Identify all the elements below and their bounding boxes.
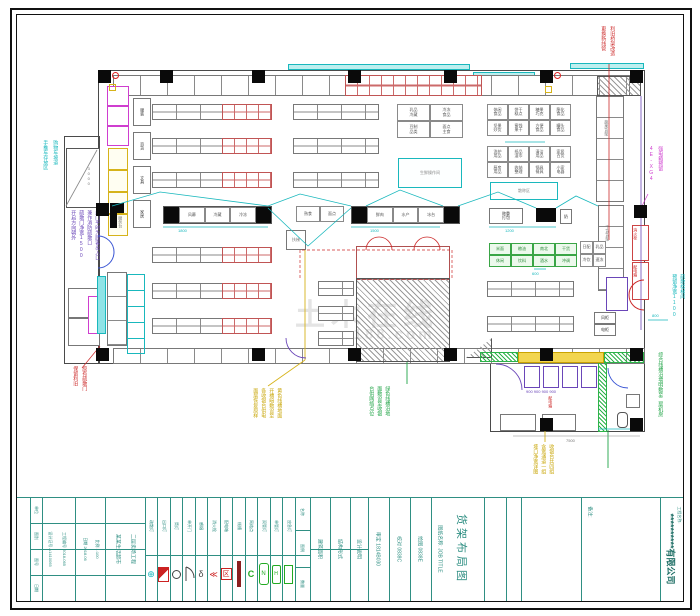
titleblock-hline: [30, 523, 145, 524]
label-box-1: 服装: [133, 98, 151, 126]
table-cell: 冷藏: [205, 207, 231, 223]
dim-600: 600: [532, 271, 539, 276]
drawing-title: 货架布局图: [454, 514, 470, 584]
note-line: 兼作消防疏散口: [86, 210, 91, 245]
titleblock-hline: [30, 575, 145, 576]
table-cell: 冲调: [555, 255, 577, 267]
drawing-sheet: 土木在线 co188.com 扶梯 蔬果货架 干货货架 消火栓 配电箱 风柜 电…: [0, 0, 700, 616]
drawing-shape: ⊕: [147, 569, 155, 580]
titleblock-vline: [195, 497, 196, 601]
tb-header-sym: 图例: [299, 544, 305, 552]
magenta-fixture-3: [107, 126, 129, 146]
gondola-row: [293, 172, 379, 188]
legend-symbol-greenc: C: [245, 560, 257, 588]
titleblock-hline: [295, 567, 310, 568]
table-cell: 乳品: [593, 241, 606, 254]
column: [96, 203, 109, 216]
top-wall-shelving-red: [345, 75, 482, 96]
column: [630, 418, 643, 431]
core-landing: [356, 246, 450, 280]
legend-name: 出口灯: [161, 520, 167, 532]
island-5-black: [536, 208, 556, 222]
table-cell: 粮油: [511, 243, 533, 255]
drawing-shape: C: [248, 569, 255, 579]
island-3-cells: 鲜肉水产冰台: [367, 207, 444, 223]
annex-box-3: [626, 394, 640, 408]
titleblock-hline: [30, 549, 145, 550]
titleblock-vline: [145, 497, 146, 601]
note-line: 利旧桥架改造: [609, 26, 614, 56]
legend-symbol-chev: ≪: [208, 560, 220, 588]
gondola-row: [152, 104, 224, 120]
dim-1800: 1800: [178, 228, 187, 233]
yellow-fixture-2: [108, 170, 128, 192]
checkout-1: [524, 366, 540, 388]
island-5-small: 奶: [560, 209, 572, 224]
gondola-row: [152, 172, 224, 188]
table-cell: 收纳 整理: [508, 162, 529, 178]
checkout-4: [581, 366, 597, 388]
table-cell: 冷饮: [580, 254, 593, 267]
tb-check: 校对 0838C: [396, 536, 403, 562]
legend-symbol-gbox2: H: [270, 560, 282, 588]
table-cell: 冰台: [418, 207, 444, 223]
red-wall-box-2: 配电箱: [632, 262, 649, 300]
note-line: 台供网络点位: [368, 386, 373, 416]
table-cell: 干货: [555, 243, 577, 255]
tb-info-label: 单位: [33, 506, 39, 514]
table-cell: 糖果 巧克: [529, 104, 550, 120]
column: [348, 70, 361, 83]
table-cell: 速冻: [593, 254, 606, 267]
right-shelf-a: [596, 96, 624, 202]
table-cell: 鲜肉: [367, 207, 393, 223]
company-name: **********有限公司: [665, 513, 678, 584]
note-line: 更换新线管: [600, 26, 605, 51]
island-1-end-b: [256, 207, 271, 223]
exit-frame-box: [606, 277, 628, 311]
left-lower-fixture: [107, 272, 127, 346]
label-box-4-text: 家居: [140, 210, 144, 218]
tb-header-name: 名称: [299, 508, 305, 516]
legend-symbol-gopen: [283, 560, 295, 588]
legend-name: 消火栓: [211, 520, 217, 532]
checkout-3: [562, 366, 578, 388]
table-cell: 酒水: [533, 255, 555, 267]
drawing-shape: [172, 570, 181, 579]
column: [540, 418, 553, 431]
table-cell: 熟食: [296, 206, 320, 222]
dim-1200: 1200: [505, 228, 514, 233]
gondola-row-red: [222, 283, 272, 299]
annex-box-1: [500, 414, 536, 431]
tb-info-label: 图号: [33, 558, 39, 566]
titleblock-vline: [182, 497, 183, 601]
column: [630, 70, 643, 83]
gondola-row: [293, 104, 379, 120]
titleblock-vline: [282, 497, 283, 601]
table-cell: 冷冻: [230, 207, 256, 223]
table-cell: 日配: [580, 241, 593, 254]
tb-project-label: 工程名称:: [676, 506, 682, 523]
column: [252, 348, 265, 361]
note-line: 手推车存放区: [42, 140, 47, 170]
table-cell: 风幕: [179, 207, 205, 223]
titleblock-vline: [170, 497, 171, 601]
table-cell: 蜜饯 果干: [508, 120, 529, 136]
green-table: 米面粮油南北干货休闲饮料酒水冲调: [489, 243, 577, 267]
table-cell: 休闲 食品: [487, 104, 508, 120]
note-line: 黄色线槽地面: [276, 388, 281, 418]
drawing-shape: 区: [221, 568, 232, 580]
gondola-row-red: [222, 247, 272, 263]
annex-cylinder: [617, 412, 628, 428]
drawing-shape: δ: [198, 569, 203, 579]
col-tag-2: [545, 86, 552, 93]
legend-name: 网络点: [248, 520, 254, 532]
legend-symbol-bar: [233, 560, 245, 588]
titleblock-vline: [389, 497, 390, 601]
note-line: 开启方向朝外: [70, 210, 75, 240]
annex-green-wall: [598, 362, 607, 432]
yellow-fixture-1: [108, 148, 128, 170]
cluster-table-a: 休闲 食品饼干 糕点糖果 巧克膨化 食品坚果 炒货蜜饯 果干方便 食品罐头 食品: [487, 104, 571, 136]
table-cell: 方便 食品: [529, 120, 550, 136]
note-line: 疏散门净宽1500: [78, 210, 83, 259]
island-1: 风幕冷藏冷冻: [163, 206, 272, 224]
note-line: 购物车坡道: [52, 140, 57, 165]
cyan-strip-top1: [288, 64, 470, 70]
note-line: 此门平时为顾客出入口: [94, 210, 99, 260]
note-line: 强电箱预留: [657, 146, 662, 171]
legend-symbol-gbox: N: [258, 560, 270, 588]
tb-jobtitle-label: 图纸名称: JOB TITLE: [437, 525, 444, 572]
titleblock-hline: [310, 549, 368, 550]
gondola-row-red: [222, 172, 272, 188]
right-shelf-b-label: 干货货架: [605, 225, 609, 241]
label-box-1-text: 服装: [140, 108, 144, 116]
legend-symbol-redtri: [158, 560, 170, 588]
column: [160, 70, 173, 83]
table-cell: 冷冻 食品: [430, 104, 463, 121]
note-line: 收银台共四组: [548, 444, 553, 474]
legend-name: 疏散灯: [148, 520, 154, 532]
note-line: 绿色线槽沿地: [384, 386, 389, 416]
drawing-shape: [158, 567, 169, 582]
col-tag-1: [109, 84, 116, 91]
service-label: 服务台: [118, 216, 122, 228]
note-line: 疏散楼梯间: [679, 274, 684, 299]
island-2: 熟食面点: [296, 206, 344, 222]
gondola-row: [152, 283, 224, 299]
kg-box-b: 散称区: [490, 182, 558, 200]
tb-info-label: 日期: [33, 584, 39, 592]
red-wall-box-1: 消火栓: [632, 225, 649, 261]
legend-name: 筒灯: [173, 522, 179, 530]
col-ring-2: [554, 72, 561, 79]
table-cell: 锅具 餐具: [529, 162, 550, 178]
titleblock-vline: [295, 497, 296, 601]
column: [252, 70, 265, 83]
gondola-row-red: [222, 104, 272, 120]
note-line: 面层恢复原样: [252, 388, 257, 418]
island-1-cells: 风幕冷藏冷冻: [179, 207, 256, 223]
note-line: 保留利旧: [72, 366, 77, 386]
column: [98, 70, 111, 83]
legend-symbol-hook: δ: [195, 560, 207, 588]
escalator-box: 扶梯: [286, 230, 306, 250]
label-box-2: 百货: [133, 132, 151, 160]
tb-header-qty: 数量: [299, 580, 305, 588]
note-line: 垭口净宽详图: [532, 444, 537, 474]
column: [348, 348, 361, 361]
legend-name: 单开门: [186, 520, 192, 532]
legend-name: 单管灯: [273, 520, 279, 532]
label-box-3-text: 文具: [140, 176, 144, 184]
drawing-shape: N: [259, 563, 269, 585]
right-shelf-a-label: 蔬果货架: [604, 120, 608, 136]
drawing-shape: ≪: [209, 570, 217, 579]
drawing-shape: [183, 566, 195, 582]
gondola-row: [318, 331, 354, 346]
island-3-end-a: [352, 207, 367, 223]
titleblock-vline: [257, 497, 258, 601]
cart-ramp: [66, 148, 100, 208]
green-band-left: [480, 352, 518, 362]
mid-table: 乳品 冷藏冷冻 食品豆制 品类面点 主食: [397, 104, 463, 138]
legend-name: 应急灯: [286, 520, 292, 532]
tb-info-label: 图别: [33, 532, 39, 540]
island-1-end-a: [164, 207, 179, 223]
note-line: 开槽暗敷设至: [268, 388, 273, 418]
column: [630, 348, 643, 361]
titleblock-hline: [295, 530, 310, 531]
island-5: 称重 打包: [489, 208, 523, 224]
table-cell: 坚果 炒货: [487, 120, 508, 136]
island-3-end-b: [444, 207, 459, 223]
annex-red-note: 配电箱: [548, 396, 552, 408]
attach-table: 日配乳品冷饮速冻: [580, 241, 606, 267]
table-cell: 米面: [489, 243, 511, 255]
cluster-table-b: 洗护 用品纸品 湿巾清洁 用品家居 百货厨房 用品收纳 整理锅具 餐具小家 电器: [487, 146, 571, 178]
service-counter-b: [110, 203, 117, 228]
titleblock-vline: [220, 497, 221, 601]
gondola-row-red: [222, 138, 272, 154]
table-cell: 面点: [320, 206, 344, 222]
titleblock-hline: [145, 555, 310, 556]
drawing-shape: [186, 567, 194, 581]
red-wall-box-2-label: 配电箱: [633, 265, 637, 277]
dim-1500: 1500: [370, 228, 379, 233]
table-cell: 小家 电器: [550, 162, 571, 178]
gondola-row: [487, 316, 574, 332]
kg-box-a: 生鲜操作间: [398, 158, 462, 188]
small-box-1: 风柜: [594, 312, 616, 324]
column: [540, 348, 553, 361]
titleblock-vline: [521, 497, 522, 601]
cyan-strip-top3: [570, 63, 644, 69]
legend-name: 感烟: [198, 522, 204, 530]
table-cell: 纸品 湿巾: [508, 146, 529, 162]
titleblock-vline: [245, 497, 246, 601]
checkout-yellow-band: [518, 352, 604, 363]
escalator-core-hatch: [356, 278, 450, 362]
table-cell: 洗护 用品: [487, 146, 508, 162]
drawing-shape: [237, 561, 241, 587]
gondola-row: [487, 281, 574, 297]
drawing-shape: [284, 565, 293, 584]
column: [444, 70, 457, 83]
table-cell: 罐头 食品: [550, 120, 571, 136]
gondola-row: [318, 281, 354, 296]
column: [96, 348, 109, 361]
checkout-2: [543, 366, 559, 388]
table-cell: 休闲: [489, 255, 511, 267]
gondola-row: [152, 318, 224, 334]
tb-note-label: 备注:: [587, 506, 594, 517]
gondola-row-red: [222, 318, 272, 334]
titleblock-vline: [431, 497, 432, 601]
table-cell: 膨化 食品: [550, 104, 571, 120]
table-cell: 乳品 冷藏: [397, 104, 430, 121]
titleblock-vline: [506, 497, 507, 601]
col-ring-1: [112, 72, 119, 79]
column: [634, 205, 647, 218]
titleblock-vline: [581, 497, 582, 601]
table-cell: 厨房 用品: [487, 162, 508, 178]
titleblock-vline: [270, 497, 271, 601]
label-box-4: 家居: [133, 200, 151, 228]
legend-symbol-door: [183, 560, 195, 588]
red-wall-box-1-label: 消火栓: [633, 228, 637, 240]
cyan-rail: [97, 276, 106, 334]
table-cell: 面点 主食: [430, 121, 463, 138]
column: [540, 70, 553, 83]
titleblock-vline: [368, 497, 369, 601]
column: [444, 348, 457, 361]
dim-7500: 7500: [566, 438, 575, 443]
island-3: 鲜肉水产冰台: [351, 206, 460, 224]
gondola-row: [318, 306, 354, 321]
label-box-2-text: 百货: [140, 142, 144, 150]
left-lower-cyan-cells: [127, 274, 145, 354]
note-line: 原有疏散门: [81, 366, 86, 391]
green-note-right: 综合线槽沿墙明敷至二层机房: [657, 352, 662, 417]
note-line: 面敷设至收银: [376, 386, 381, 416]
legend-name: 配电箱: [223, 520, 229, 532]
checkout-dims: 900 900 900 900: [526, 389, 556, 394]
legend-symbol-target: ⊕: [145, 560, 157, 588]
table-cell: 家居 百货: [550, 146, 571, 162]
gondola-row: [152, 247, 224, 263]
note-line: 各收银台供电: [260, 388, 265, 418]
note-line: 4E-XG4: [648, 146, 653, 182]
dim-800: 800: [652, 313, 659, 318]
titleblock-vline: [232, 497, 233, 601]
titleblock-vline: [207, 497, 208, 601]
table-cell: 饮料: [511, 255, 533, 267]
gondola-row: [293, 138, 379, 154]
magenta-fixture-2: [107, 106, 129, 126]
dim-3000: 3000: [86, 166, 90, 186]
titleblock-vline: [410, 497, 411, 601]
table-cell: 水产: [393, 207, 419, 223]
legend-name: 双管灯: [261, 520, 267, 532]
table-cell: 南北: [533, 243, 555, 255]
titleblock-vline: [157, 497, 158, 601]
gondola-row: [152, 138, 224, 154]
tb-draw: 绘图 0838E: [417, 536, 424, 562]
drawing-shape: H: [272, 565, 281, 584]
note-line: 预留净宽1100: [671, 274, 676, 318]
table-cell: 清洁 用品: [529, 146, 550, 162]
titleblock-vline: [484, 497, 485, 601]
table-cell: 豆制 品类: [397, 121, 430, 138]
label-box-3: 文具: [133, 166, 151, 194]
legend-symbol-circle: [170, 560, 182, 588]
table-cell: 饼干 糕点: [508, 104, 529, 120]
tb-approve: 审定 1814B030: [375, 532, 382, 566]
small-box-2: 电柜: [594, 324, 616, 336]
note-line: 含宽通道一组: [540, 444, 545, 474]
legend-name: 线槽: [236, 522, 242, 530]
legend-symbol-redbox: 区: [220, 560, 232, 588]
titleblock-vline: [660, 497, 661, 601]
